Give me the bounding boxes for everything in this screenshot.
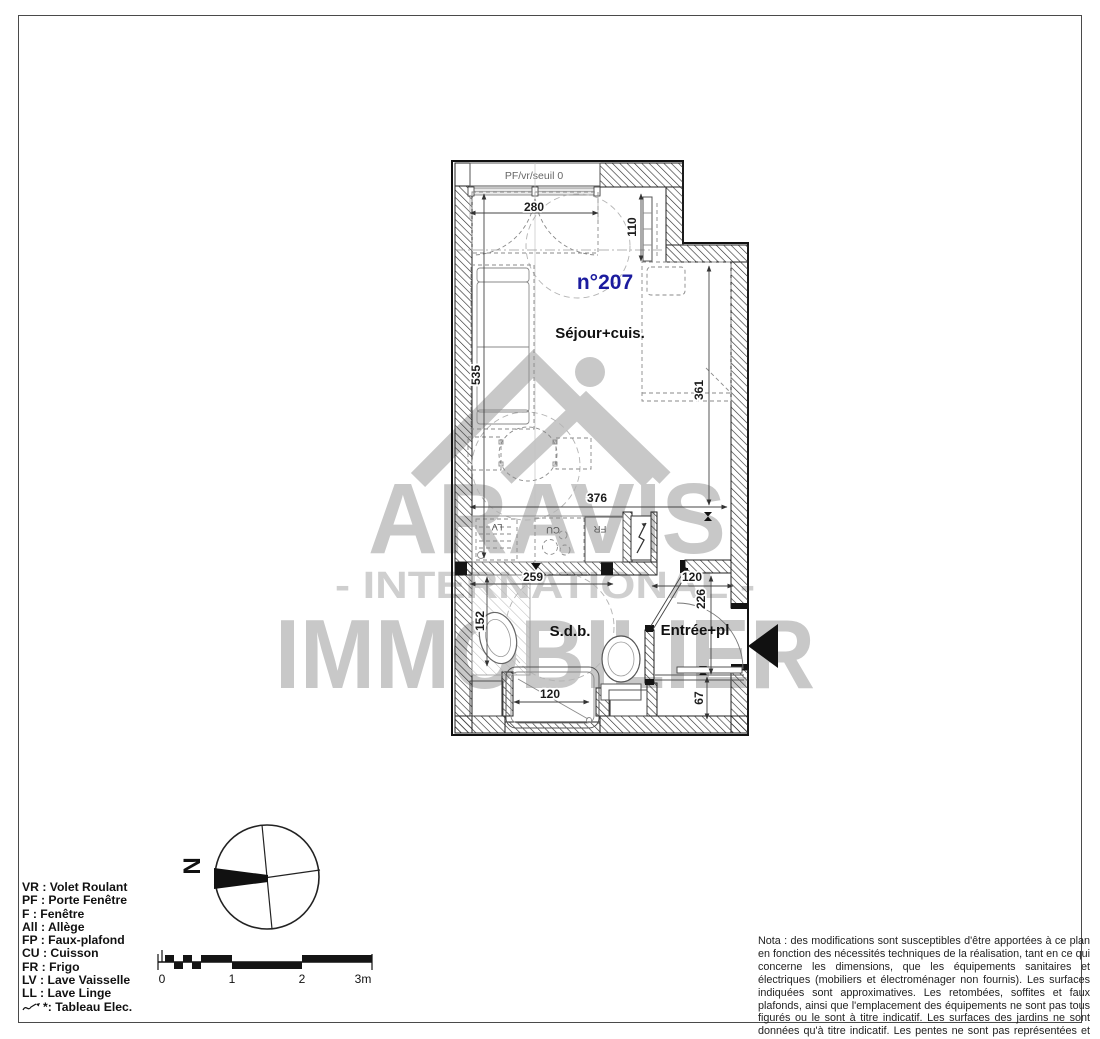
- legend-item: LL : Lave Linge: [22, 987, 132, 1000]
- dim-sejour-width: 376: [587, 491, 607, 505]
- dim-sdb-width: 259: [523, 570, 543, 584]
- fridge-label: FR: [594, 523, 607, 534]
- radiator: [643, 197, 657, 261]
- dim-window-width: 280: [524, 200, 544, 214]
- room-label-sejour: Séjour+cuis.: [555, 325, 645, 342]
- dishwasher-label: LV: [491, 521, 503, 532]
- legend-item: LV : Lave Vaisselle: [22, 974, 132, 987]
- dim-bath-width: 120: [540, 687, 560, 701]
- north-needle-icon: [214, 868, 268, 889]
- window-label: PF/vr/seuil 0: [505, 170, 564, 182]
- nota-disclaimer: Nota : des modifications sont susceptibl…: [758, 935, 1090, 1039]
- legend-item: VR : Volet Roulant: [22, 881, 132, 894]
- scale-bar: 0 1 2 3m: [158, 950, 372, 986]
- scale-label-1: 1: [229, 972, 236, 986]
- dim-entree-width: 120: [682, 570, 702, 584]
- north-label: N: [179, 857, 206, 874]
- scale-label-3m: 3m: [355, 972, 372, 986]
- electrical-panel: [631, 516, 651, 560]
- north-compass: N: [179, 825, 320, 929]
- electric-zigzag-icon: [22, 1001, 42, 1013]
- room-label-entree: Entrée+pl: [661, 622, 730, 639]
- plan-sheet: ARAVIS - INTERNATIONAL - IMMOBILIER: [0, 0, 1100, 1039]
- legend: VR : Volet Roulant PF : Porte Fenêtre F …: [22, 881, 132, 1014]
- unit-number: n°207: [577, 271, 633, 294]
- dim-sdb-left: 152: [473, 611, 487, 631]
- legend-item: FP : Faux-plafond: [22, 934, 132, 947]
- legend-item-tableau: * : Tableau Elec.: [22, 1001, 132, 1014]
- floor-plan-drawing: ARAVIS - INTERNATIONAL - IMMOBILIER: [0, 0, 1100, 1039]
- dim-sejour-length: 535: [469, 365, 483, 385]
- legend-item: All : Allège: [22, 921, 132, 934]
- bed: [642, 262, 731, 401]
- dim-alcove-depth: 110: [625, 217, 639, 237]
- dim-bed-wall: 361: [692, 380, 706, 400]
- dim-entree-depth: 226: [694, 589, 708, 609]
- cooktop-label: CU: [546, 524, 560, 535]
- legend-item: FR : Frigo: [22, 961, 132, 974]
- legend-item: PF : Porte Fenêtre: [22, 894, 132, 907]
- watermark-brand: ARAVIS: [368, 463, 726, 575]
- scale-label-2: 2: [299, 972, 306, 986]
- legend-item: CU : Cuisson: [22, 947, 132, 960]
- dim-placard-depth: 67: [692, 691, 706, 705]
- room-label-sdb: S.d.b.: [550, 623, 591, 640]
- legend-tableau-label: : Tableau Elec.: [48, 1001, 132, 1014]
- scale-label-0: 0: [159, 972, 166, 986]
- legend-item: F : Fenêtre: [22, 908, 132, 921]
